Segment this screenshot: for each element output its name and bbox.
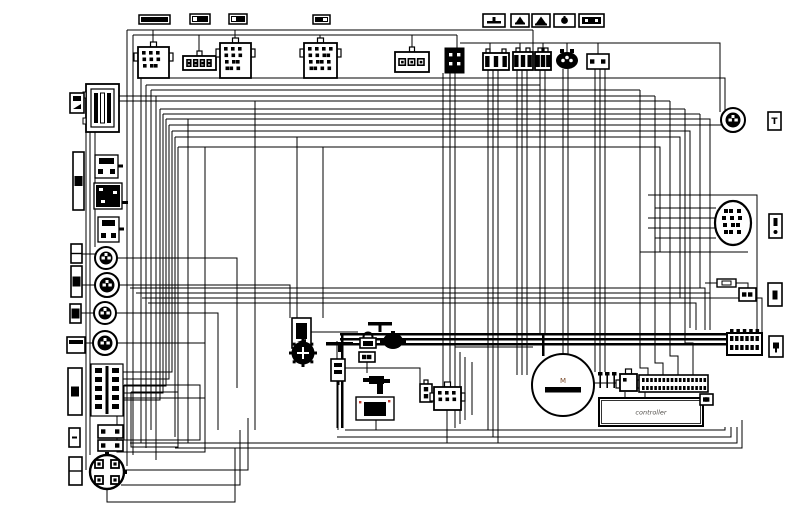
controller-label: controller	[635, 409, 667, 417]
connector-bl-2	[98, 440, 123, 451]
rail-box-3	[71, 266, 82, 297]
connector-top-1	[134, 42, 173, 78]
rail-box-6	[68, 368, 82, 415]
connector-bl-1	[98, 425, 123, 438]
indicator-battery-icon	[579, 14, 604, 27]
connector-right-1	[739, 288, 756, 301]
icon-right-2	[769, 214, 782, 238]
connector-right-2	[727, 329, 762, 355]
bracket-part	[83, 84, 119, 132]
connector-top-10	[556, 49, 578, 69]
indicator-valve-icon	[554, 14, 575, 27]
wire	[640, 90, 648, 375]
connector-mid-3	[430, 382, 465, 410]
wire	[142, 298, 762, 337]
svg-text:T: T	[771, 117, 778, 127]
part-left-3	[98, 217, 124, 242]
indicator-horn-icon	[532, 14, 550, 27]
indicator-bell-icon	[511, 14, 529, 27]
wire	[130, 427, 737, 443]
round-plug-1	[95, 247, 117, 269]
rail-box-7	[69, 428, 80, 447]
wire	[107, 448, 235, 502]
wire	[123, 131, 172, 372]
round-plug-3	[94, 302, 116, 324]
connector-top-4	[300, 38, 341, 78]
round-plug-2	[95, 273, 119, 297]
oval-connector	[715, 201, 751, 245]
connector-top-6	[445, 48, 464, 73]
connector-top-5	[395, 47, 429, 72]
connector-top-3	[216, 38, 255, 78]
rail-box-5	[67, 337, 85, 353]
label-bar-3	[229, 14, 247, 24]
connector-top-9	[535, 48, 551, 70]
wire	[117, 398, 205, 452]
wire	[136, 293, 710, 330]
wire	[337, 427, 731, 437]
motor-label: M	[560, 377, 566, 385]
wiring-diagram: McontrollerT	[0, 0, 812, 522]
connector-top-2	[183, 51, 216, 70]
label-bar-2	[190, 14, 210, 24]
connector-top-7	[483, 49, 509, 70]
wiring-diagram-page: McontrollerT	[0, 0, 812, 522]
connector-ctrl	[700, 394, 713, 405]
label-bar-4	[313, 15, 330, 24]
icon-right-3	[768, 283, 782, 306]
wire	[178, 147, 660, 252]
pin-strip	[639, 375, 708, 392]
wire	[123, 418, 248, 470]
connector-strip-head	[616, 369, 641, 391]
connector-top-8	[513, 48, 533, 70]
display-unit	[356, 397, 394, 420]
wire	[121, 430, 240, 485]
fuse	[717, 279, 736, 287]
tbar-1	[368, 322, 392, 332]
wire	[175, 137, 680, 298]
wire	[117, 258, 237, 388]
rail-box-8	[69, 457, 82, 485]
tbar-2	[326, 342, 353, 352]
connector-left-1	[70, 93, 84, 113]
pins-trio	[598, 372, 617, 388]
wires-layer	[81, 30, 762, 502]
icon-right-1: T	[768, 112, 781, 130]
part-left-2	[94, 183, 128, 209]
gear-part	[289, 339, 317, 367]
connector-top-11	[587, 54, 609, 69]
indicator-speed-icon	[483, 14, 505, 27]
wire	[345, 427, 725, 430]
rail-box-4	[70, 304, 81, 323]
wire	[123, 114, 163, 393]
spray-gun	[363, 376, 390, 394]
motor: M	[532, 354, 594, 416]
round-plug-5	[90, 452, 127, 489]
wire	[141, 78, 725, 110]
sensor-part	[331, 359, 345, 385]
connector-mid-1	[359, 352, 375, 362]
part-left-1	[95, 155, 123, 178]
wire	[148, 303, 696, 330]
round-plug-right-1	[721, 108, 745, 132]
icon-right-4	[769, 336, 783, 357]
controller-box: controller	[599, 398, 703, 426]
junction-block	[91, 364, 123, 416]
wire	[130, 288, 705, 330]
wire	[166, 119, 710, 293]
label-bar-1	[139, 15, 170, 24]
rail-box-1	[73, 152, 84, 210]
wire	[455, 347, 533, 428]
rail-box-2	[71, 244, 82, 263]
round-plug-4	[93, 331, 117, 355]
